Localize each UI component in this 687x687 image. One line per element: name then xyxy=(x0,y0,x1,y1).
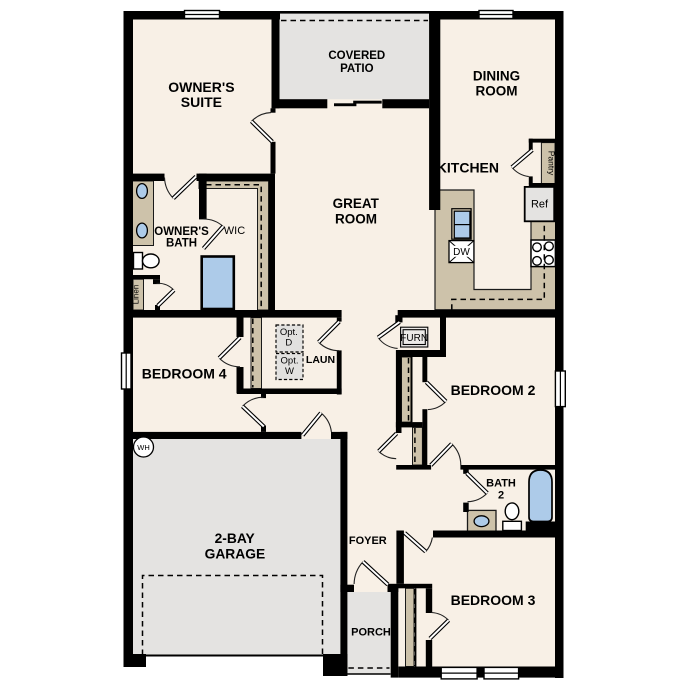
svg-text:PORCH: PORCH xyxy=(351,627,391,639)
svg-text:ROOM: ROOM xyxy=(335,212,377,227)
svg-text:DW: DW xyxy=(453,247,470,258)
svg-text:FOYER: FOYER xyxy=(349,535,387,547)
svg-text:FURN: FURN xyxy=(400,333,428,344)
svg-text:GREAT: GREAT xyxy=(333,196,380,211)
svg-text:Ref: Ref xyxy=(531,199,549,211)
svg-text:OWNER'S: OWNER'S xyxy=(154,226,209,238)
svg-text:WH: WH xyxy=(137,443,150,452)
svg-text:OWNER'S: OWNER'S xyxy=(168,79,234,95)
svg-text:2: 2 xyxy=(498,490,504,502)
svg-text:D: D xyxy=(285,338,292,349)
svg-text:BATH: BATH xyxy=(486,478,516,490)
svg-text:DINING: DINING xyxy=(473,69,520,84)
svg-text:W: W xyxy=(285,366,294,377)
svg-text:Linen: Linen xyxy=(132,285,141,305)
svg-text:BEDROOM 3: BEDROOM 3 xyxy=(451,592,536,608)
svg-text:Opt.: Opt. xyxy=(280,327,298,338)
svg-text:2-BAY: 2-BAY xyxy=(215,531,255,546)
svg-text:BATH: BATH xyxy=(166,238,197,250)
svg-text:LAUN: LAUN xyxy=(306,354,335,366)
svg-text:BEDROOM 4: BEDROOM 4 xyxy=(142,366,227,382)
svg-text:Opt.: Opt. xyxy=(281,356,299,367)
svg-text:SUITE: SUITE xyxy=(181,94,222,110)
svg-text:PATIO: PATIO xyxy=(340,63,373,75)
svg-text:COVERED: COVERED xyxy=(328,50,385,62)
svg-text:GARAGE: GARAGE xyxy=(205,547,266,562)
svg-text:KITCHEN: KITCHEN xyxy=(437,160,499,176)
svg-text:WIC: WIC xyxy=(224,225,245,237)
svg-text:BEDROOM 2: BEDROOM 2 xyxy=(451,382,536,398)
svg-text:Pantry: Pantry xyxy=(546,151,556,176)
svg-text:ROOM: ROOM xyxy=(476,84,518,99)
